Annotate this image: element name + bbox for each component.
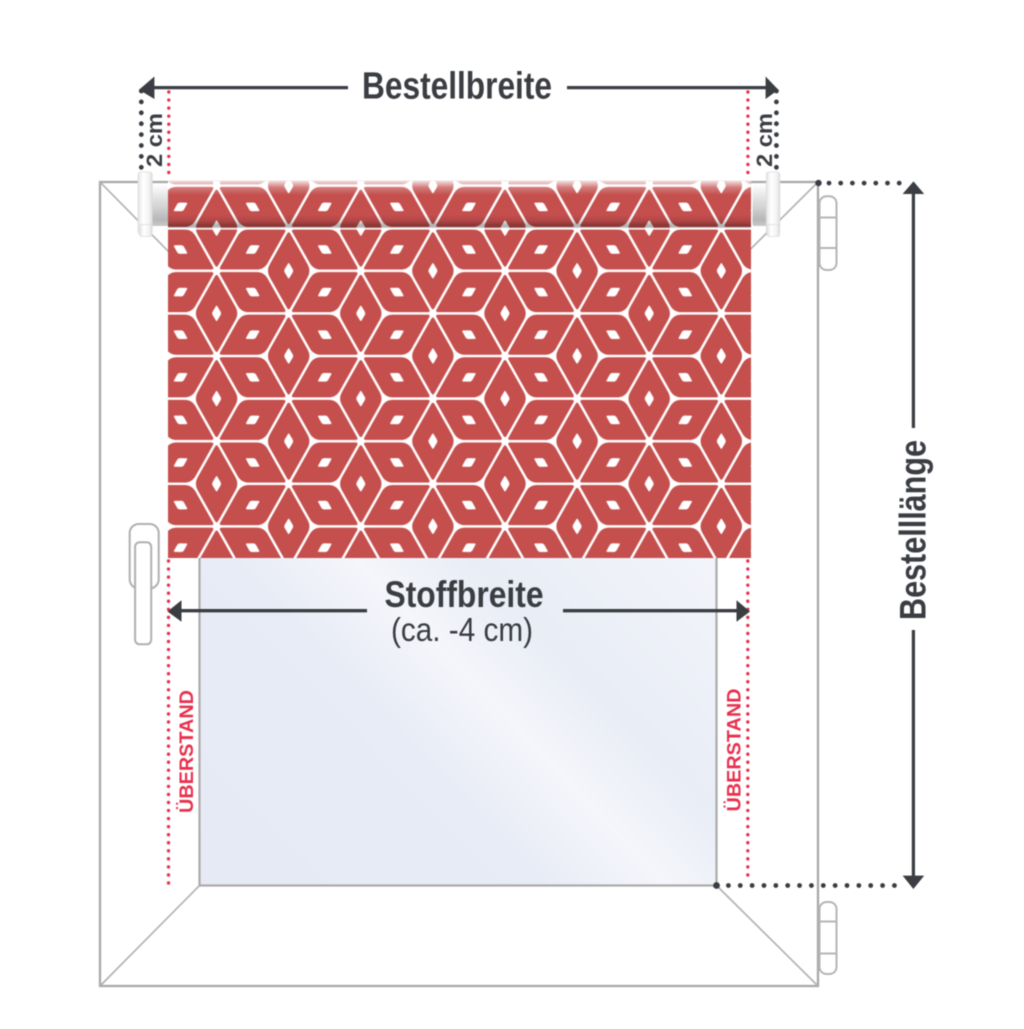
svg-text:2 cm: 2 cm xyxy=(142,113,167,167)
svg-text:2 cm: 2 cm xyxy=(752,113,777,167)
svg-text:(ca. -4 cm): (ca. -4 cm) xyxy=(391,611,533,648)
svg-text:Bestelllänge: Bestelllänge xyxy=(893,440,934,620)
svg-text:ÜBERSTAND: ÜBERSTAND xyxy=(725,689,746,812)
svg-text:Bestellbreite: Bestellbreite xyxy=(362,66,552,108)
svg-text:Stoffbreite: Stoffbreite xyxy=(385,574,544,615)
svg-text:ÜBERSTAND: ÜBERSTAND xyxy=(177,690,198,813)
